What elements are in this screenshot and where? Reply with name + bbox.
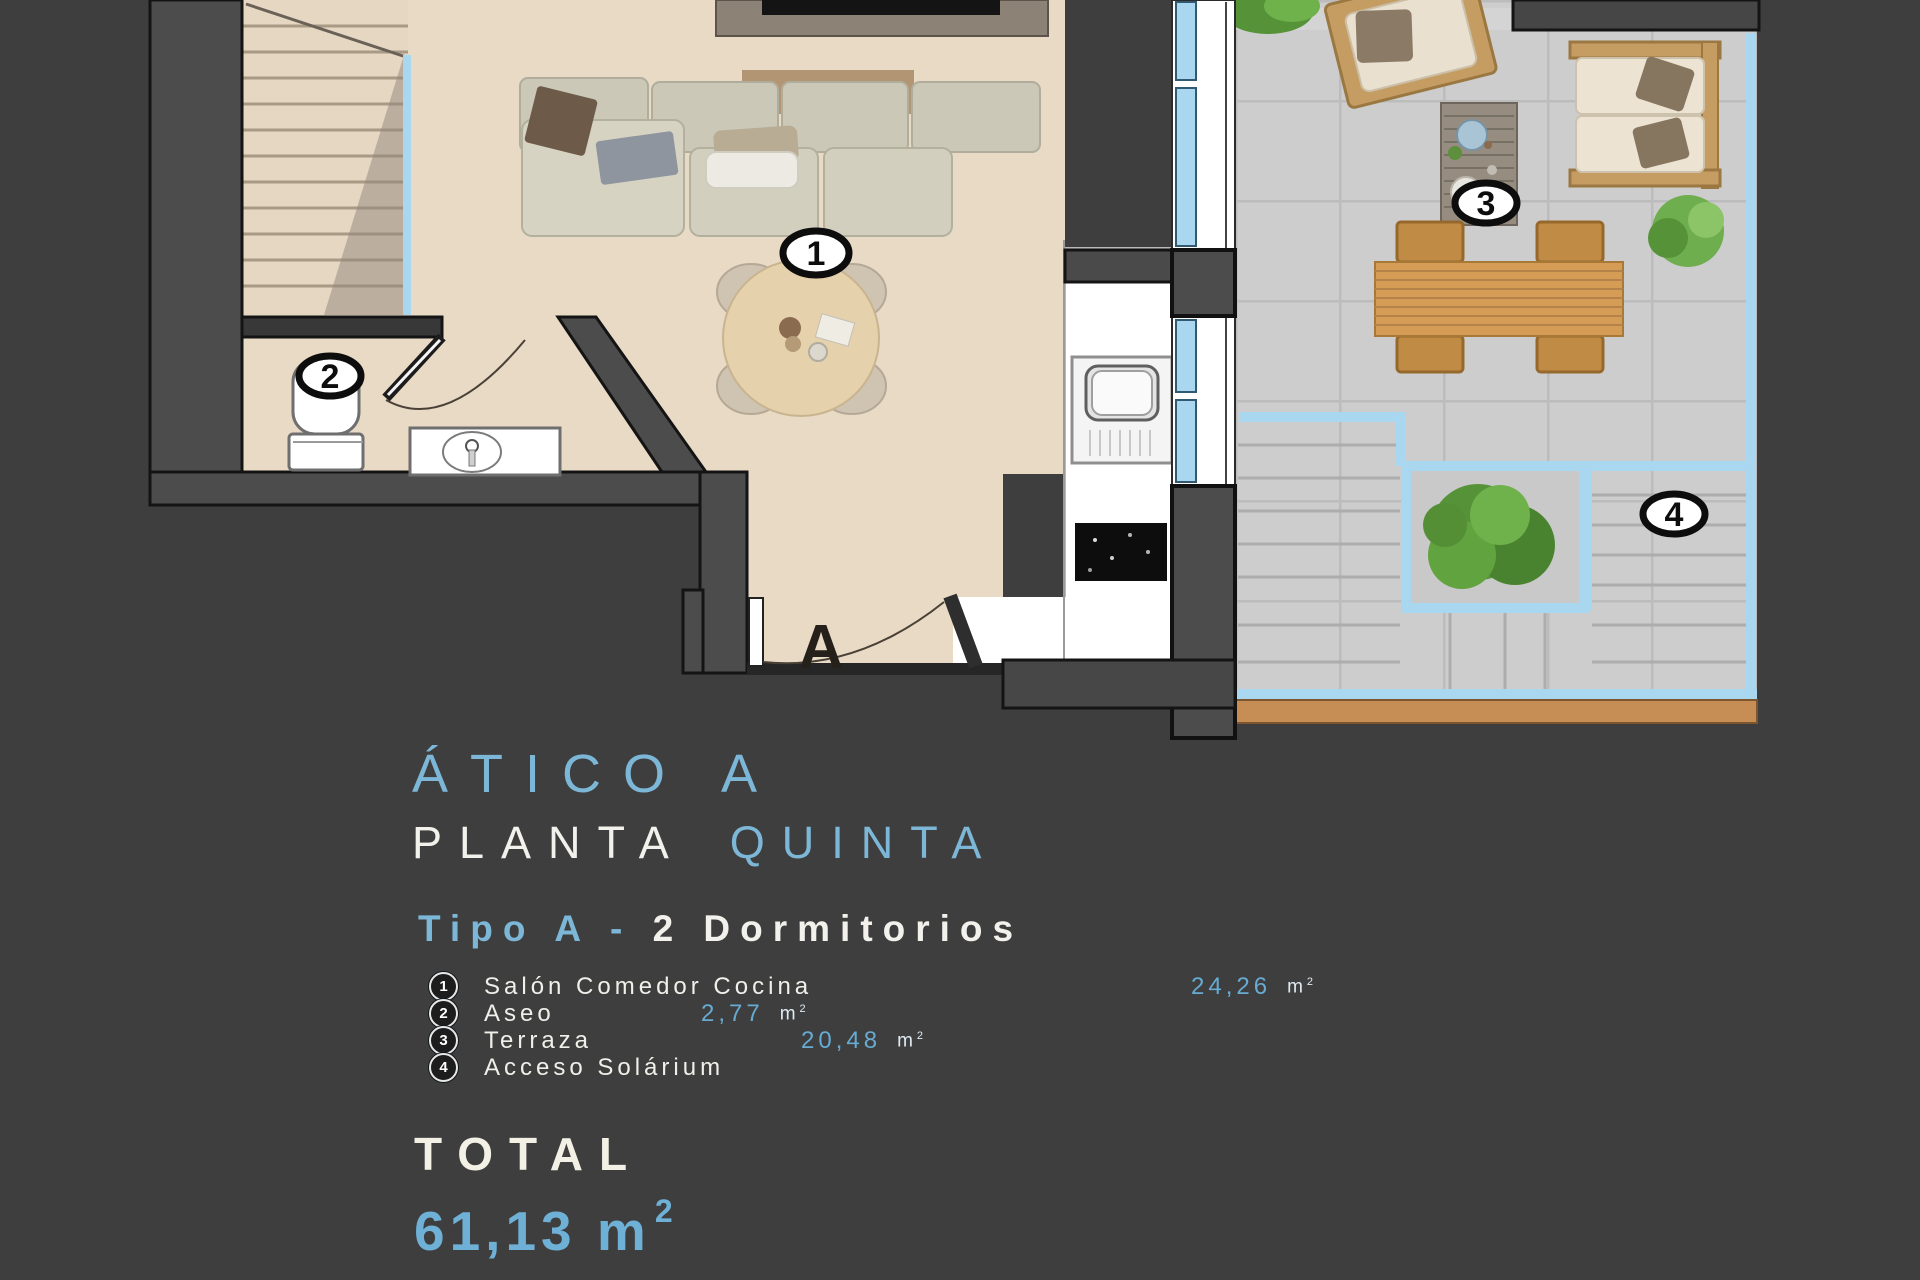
legend-marker-2: 2 (429, 999, 458, 1028)
legend-label: Salón Comedor Cocina (484, 973, 1191, 1001)
total-label: TOTAL (414, 1127, 1512, 1181)
round-table (723, 260, 879, 416)
round-table-set (717, 260, 886, 416)
terrace-wood-edge (1235, 700, 1757, 723)
entrance-letter: A (799, 613, 846, 682)
badge-terraza-number: 3 (1477, 185, 1496, 223)
legend-unit: m2 (897, 1030, 927, 1052)
unit-type: Tipo A - 2 Dormitorios (418, 908, 1512, 950)
dining-chair (1397, 336, 1463, 372)
legend-label: Terraza (484, 1027, 801, 1055)
legend-row-salon: 1 Salón Comedor Cocina 24,26 m2 (429, 974, 1512, 1000)
floor-plan: 1 2 3 4 A (0, 0, 1920, 740)
sink-vanity (410, 428, 560, 475)
wall-left (150, 0, 242, 505)
window-glazing (1176, 2, 1196, 482)
badge-aseo-number: 2 (321, 358, 340, 396)
terrace-wall-top (1513, 0, 1759, 30)
legend-value: 20,48 (801, 1027, 881, 1055)
sofa-pillow-white (706, 152, 798, 188)
terrace (1222, 0, 1759, 723)
kitchen-wall-cap (1065, 250, 1172, 282)
legend-row-terraza: 3 Terraza 20,48 m2 (429, 1028, 1512, 1054)
legend-unit: m2 (1287, 976, 1317, 998)
dining-chair (1397, 222, 1463, 262)
wall-bottom-left (150, 472, 703, 505)
legend-marker-4: 4 (429, 1053, 458, 1082)
wall-under-stairs (242, 317, 442, 337)
window-band (1172, 0, 1235, 738)
legend-value: 24,26 (1191, 973, 1271, 1001)
kitchen-cooktop (1075, 523, 1167, 581)
door-jamb (749, 598, 763, 666)
total-value: 61,13 m2 (414, 1193, 1512, 1263)
legend-value: 2,77 (701, 1000, 764, 1028)
legend-label: Acceso Solárium (484, 1054, 724, 1082)
tv-unit (716, 0, 1048, 36)
total-unit: m (597, 1200, 651, 1262)
dining-chair (1537, 222, 1603, 262)
wall-entrance-left (700, 472, 747, 673)
badge-terraza: 3 (1455, 183, 1517, 223)
wall-entrance-bottom (747, 663, 1003, 675)
legend-row-solarium: 4 Acceso Solárium (429, 1055, 1512, 1081)
legend-row-aseo: 2 Aseo 2,77 m2 (429, 1001, 1512, 1027)
page-title: ÁTICO A (412, 746, 1512, 803)
interior-staircase (242, 0, 408, 315)
wall-kitchen-bottom (1003, 660, 1235, 708)
unit-type-accent: Tipo A - (418, 908, 632, 949)
badge-salon-number: 1 (807, 235, 826, 273)
terrace-loveseat (1570, 42, 1720, 188)
page-subtitle: PLANTAQUINTA (412, 819, 1512, 866)
badge-solarium-number: 4 (1665, 496, 1684, 534)
badge-aseo: 2 (299, 356, 361, 396)
legend-marker-1: 1 (429, 972, 458, 1001)
page: 1 2 3 4 A ÁTICO A PLANTAQUINTA Tipo A - … (0, 0, 1920, 1280)
kitchen-sink (1072, 357, 1172, 463)
wall-pier-upper (1172, 250, 1235, 316)
info-panel: ÁTICO A PLANTAQUINTA Tipo A - 2 Dormitor… (412, 746, 1512, 1263)
legend-unit: m2 (780, 1003, 810, 1025)
wall-entrance-corner (683, 590, 703, 673)
total-sup: 2 (655, 1193, 678, 1229)
subtitle-white: PLANTA (412, 817, 686, 868)
subtitle-accent: QUINTA (730, 817, 999, 868)
legend-label: Aseo (484, 1000, 701, 1028)
floor-plan-svg: 1 2 3 4 A (0, 0, 1920, 740)
badge-salon: 1 (783, 231, 849, 275)
legend: 1 Salón Comedor Cocina 24,26 m2 2 Aseo 2… (429, 974, 1512, 1081)
badge-solarium: 4 (1643, 494, 1705, 534)
tv-screen (762, 0, 1000, 15)
legend-marker-3: 3 (429, 1026, 458, 1055)
unit-type-rest: 2 Dormitorios (653, 908, 1024, 949)
dining-chair (1537, 336, 1603, 372)
